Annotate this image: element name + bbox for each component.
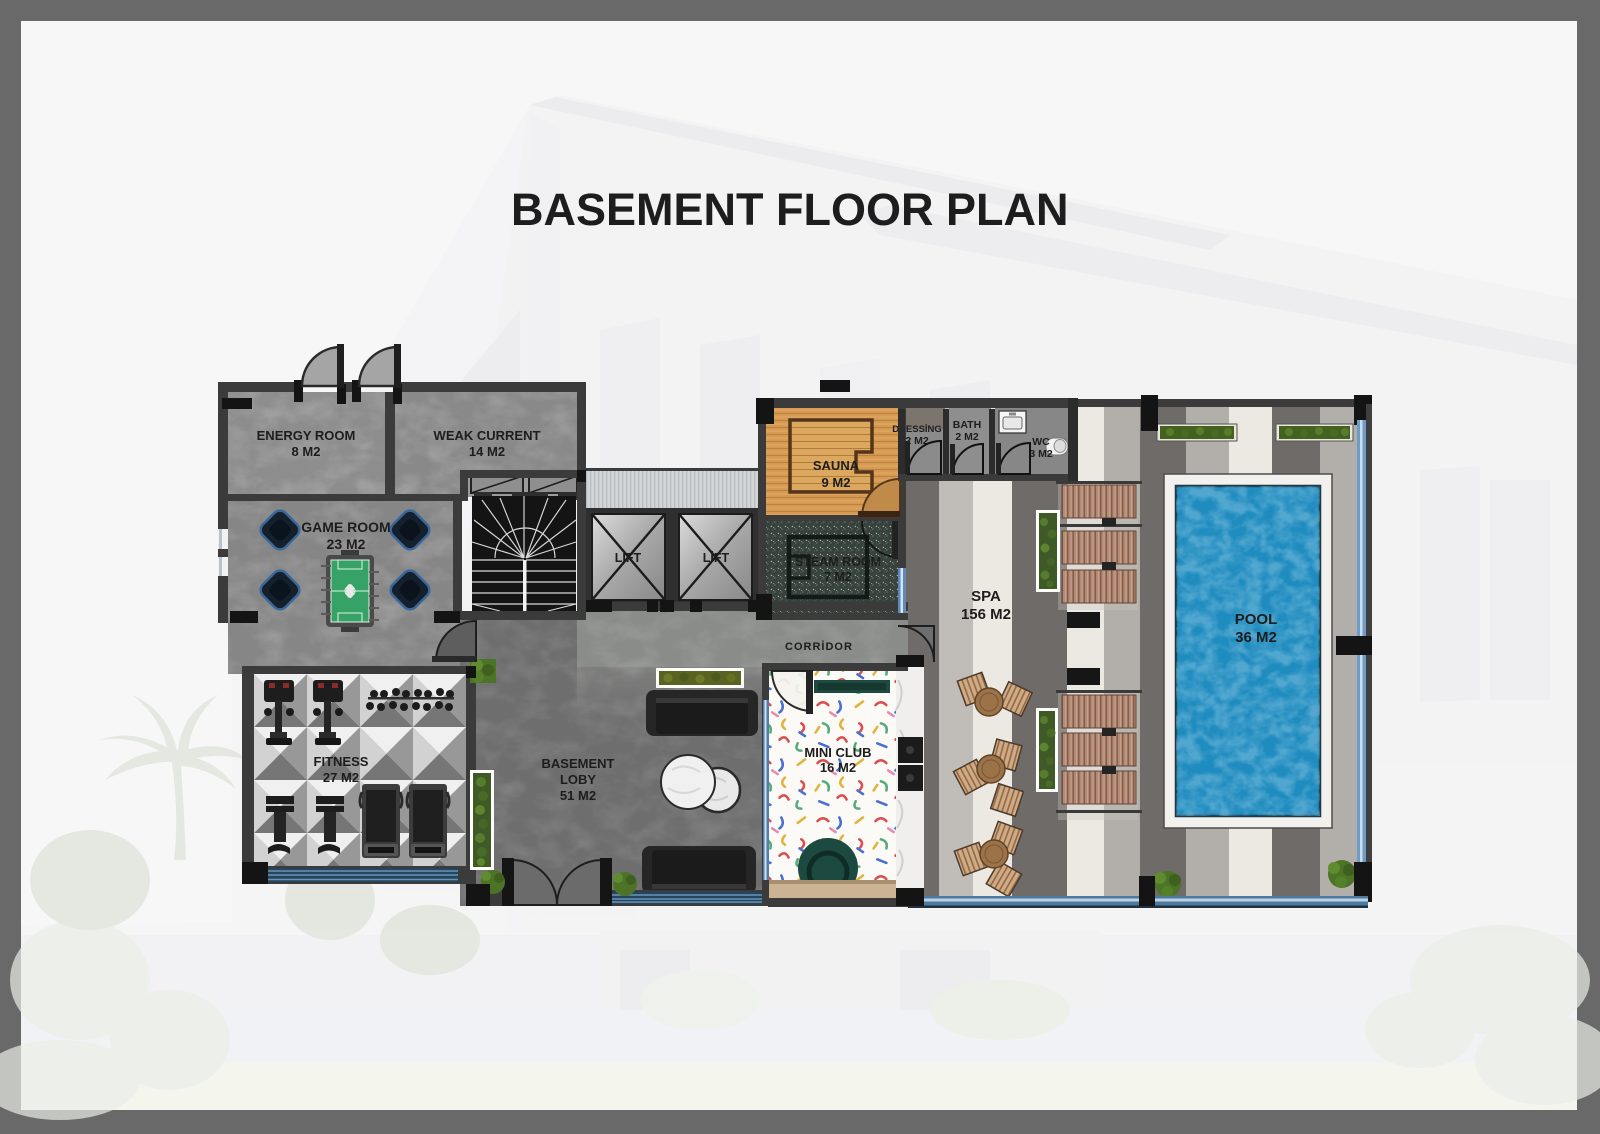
- svg-text:ENERGY ROOM: ENERGY ROOM: [257, 428, 356, 443]
- svg-text:14 M2: 14 M2: [469, 444, 505, 459]
- svg-text:BASEMENT FLOOR PLAN: BASEMENT FLOOR PLAN: [511, 184, 1069, 235]
- svg-text:BASEMENT: BASEMENT: [542, 756, 615, 771]
- svg-text:36 M2: 36 M2: [1235, 629, 1277, 646]
- svg-text:POOL: POOL: [1235, 611, 1278, 628]
- svg-text:GAME ROOM: GAME ROOM: [301, 519, 390, 535]
- svg-text:FITNESS: FITNESS: [314, 754, 369, 769]
- svg-text:LOBY: LOBY: [560, 772, 596, 787]
- svg-text:51 M2: 51 M2: [560, 788, 596, 803]
- svg-text:WC: WC: [1032, 436, 1050, 448]
- svg-text:SAUNA: SAUNA: [813, 458, 860, 473]
- svg-text:STEAM ROOM: STEAM ROOM: [795, 555, 881, 569]
- svg-text:16 M2: 16 M2: [820, 760, 856, 775]
- svg-text:8 M2: 8 M2: [292, 444, 321, 459]
- svg-text:SPA: SPA: [971, 588, 1001, 605]
- svg-text:BATH: BATH: [953, 419, 981, 431]
- svg-text:27 M2: 27 M2: [323, 770, 359, 785]
- svg-text:2 M2: 2 M2: [955, 431, 979, 443]
- svg-text:MINI CLUB: MINI CLUB: [804, 745, 871, 760]
- svg-text:7 M2: 7 M2: [824, 570, 852, 584]
- svg-text:9 M2: 9 M2: [822, 475, 851, 490]
- svg-text:WEAK CURRENT: WEAK CURRENT: [434, 428, 541, 443]
- svg-text:CORRİDOR: CORRİDOR: [785, 640, 853, 653]
- svg-text:3 M2: 3 M2: [1029, 448, 1053, 460]
- svg-text:23 M2: 23 M2: [327, 536, 366, 552]
- svg-text:LİFT: LİFT: [615, 550, 642, 565]
- svg-text:LİFT: LİFT: [703, 550, 730, 565]
- svg-text:156 M2: 156 M2: [961, 606, 1011, 623]
